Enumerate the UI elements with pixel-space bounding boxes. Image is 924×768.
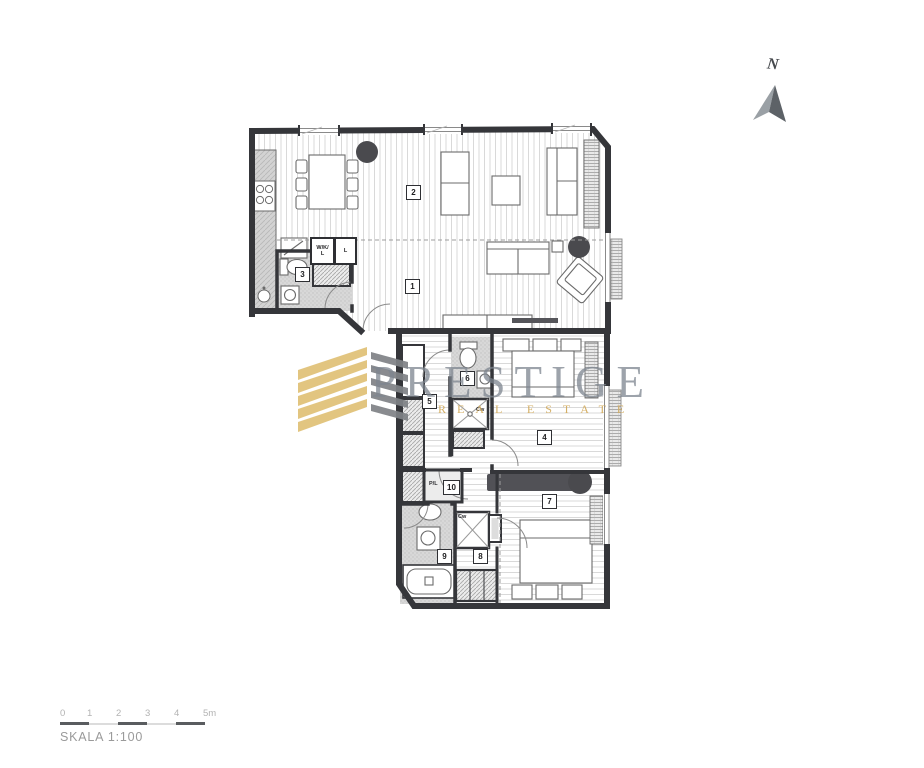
scale-tick-0: 0	[60, 708, 65, 719]
room-label-10: 10	[443, 480, 460, 495]
watermark-brand-name: PRESTIGE	[371, 356, 653, 408]
scale-tick-5: 5m	[203, 708, 216, 719]
room-label-1: 1	[405, 279, 420, 294]
closet-pl-label: P/L	[429, 481, 438, 487]
room-label-8: 8	[473, 549, 488, 564]
scale-segment	[176, 722, 205, 725]
scale-tick-3: 3	[145, 708, 150, 719]
shower-cw-label-2: Cw	[458, 514, 466, 520]
floor-plan-page: N 1 2 3 4 5 6 7 8 9 10 W/K/ L L P/L Cw C…	[0, 0, 924, 768]
compass-north-label: N	[766, 55, 779, 74]
kitchen-counter	[252, 150, 276, 311]
scale-segment	[118, 722, 147, 725]
room-label-9: 9	[437, 549, 452, 564]
scale-segment	[147, 723, 176, 725]
scale-tick-1: 1	[87, 708, 92, 719]
closet-wkl-line2: L	[312, 251, 333, 257]
closet-wkl: W/K/ L	[310, 237, 335, 265]
room-label-3: 3	[295, 267, 310, 282]
scale-tick-4: 4	[174, 708, 179, 719]
watermark-tagline: REAL ESTATE	[438, 402, 635, 417]
dining-set	[296, 155, 358, 209]
closet-linen-label: L	[336, 248, 355, 254]
scale-segment	[89, 723, 118, 725]
room-label-2: 2	[406, 185, 421, 200]
closet-linen: L	[334, 237, 357, 265]
north-arrow-icon	[753, 85, 786, 122]
room-label-4: 4	[537, 430, 552, 445]
scale-caption: SKALA 1:100	[60, 730, 143, 744]
room-label-7: 7	[542, 494, 557, 509]
scale-tick-2: 2	[116, 708, 121, 719]
scale-segment	[60, 722, 89, 725]
